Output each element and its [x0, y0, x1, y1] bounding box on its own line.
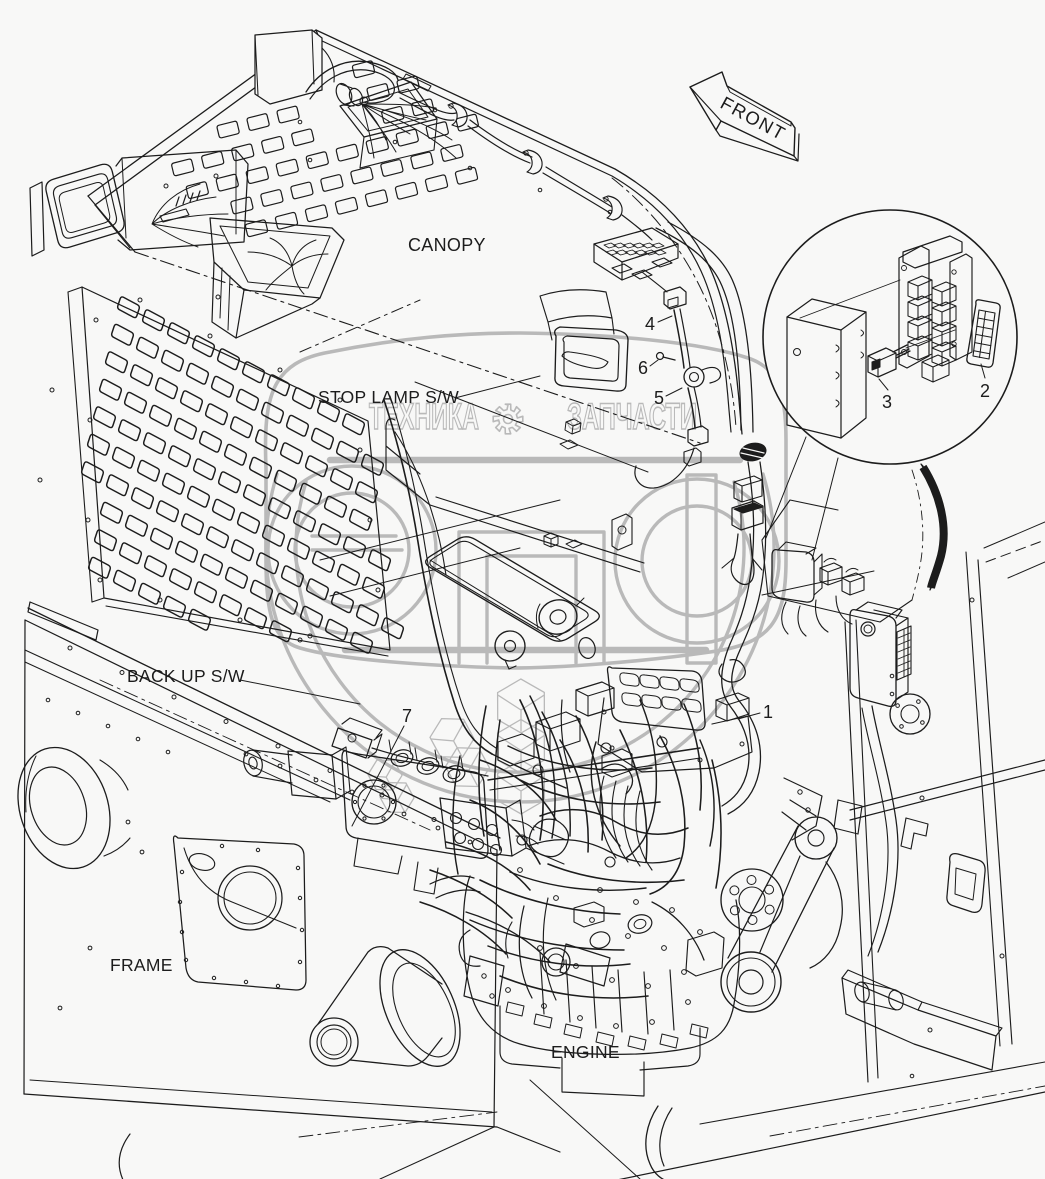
- svg-text:FRAME: FRAME: [110, 955, 173, 975]
- svg-text:BACK UP S/W: BACK UP S/W: [127, 666, 245, 686]
- svg-text:4: 4: [645, 314, 655, 334]
- svg-text:3: 3: [882, 392, 892, 412]
- svg-text:STOP LAMP S/W: STOP LAMP S/W: [318, 387, 459, 407]
- svg-text:5: 5: [654, 388, 664, 408]
- svg-text:ENGINE: ENGINE: [551, 1042, 620, 1062]
- svg-text:ЗАПЧАСТИ: ЗАПЧАСТИ: [567, 396, 697, 437]
- svg-text:CANOPY: CANOPY: [408, 235, 486, 255]
- svg-text:6: 6: [638, 358, 648, 378]
- svg-text:7: 7: [402, 706, 412, 726]
- svg-text:1: 1: [763, 702, 773, 722]
- svg-text:2: 2: [980, 381, 990, 401]
